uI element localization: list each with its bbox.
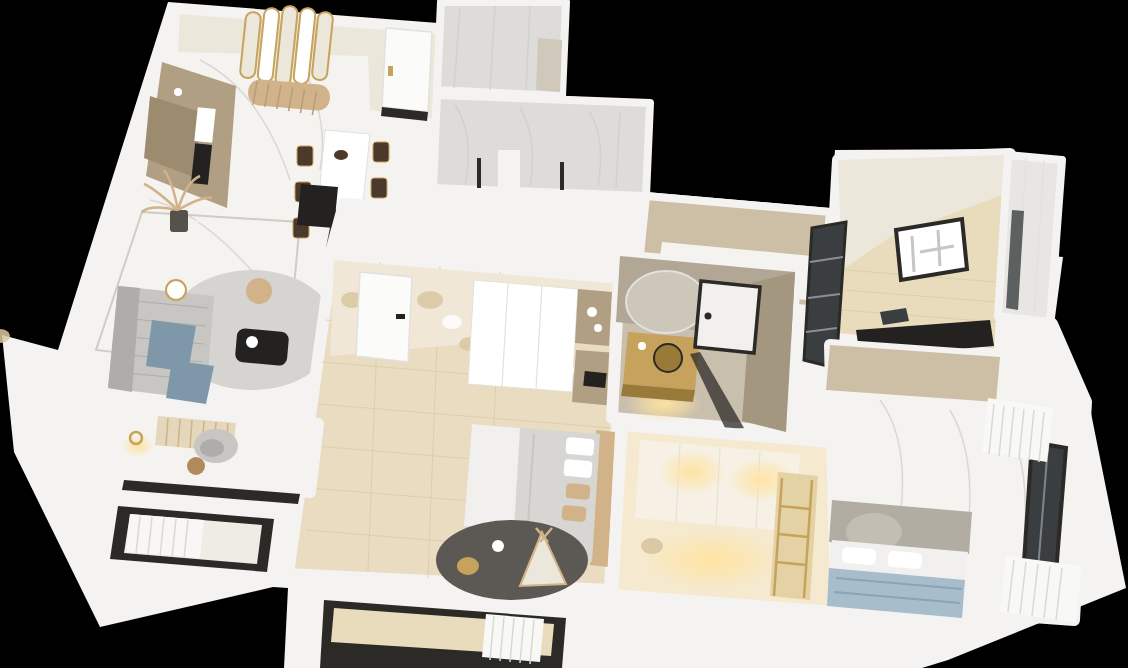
room-foyer xyxy=(112,408,318,504)
wood-side-table xyxy=(187,457,205,475)
nook-vase-2 xyxy=(594,324,602,332)
master-door-handle-icon xyxy=(396,314,405,319)
room-bedroom-right xyxy=(826,320,1086,622)
sconce-glow xyxy=(122,435,154,457)
bath-door-handle-icon xyxy=(705,313,712,320)
room-study xyxy=(804,154,1010,368)
pillow-white-2 xyxy=(563,459,592,478)
room-marble-bath xyxy=(433,95,650,196)
dining-chair-1 xyxy=(297,146,313,166)
vessel-sink xyxy=(654,344,682,372)
armchair-seat xyxy=(200,439,224,457)
loft-bed-ladder xyxy=(770,472,818,600)
pillow-tan-2 xyxy=(561,505,586,522)
vanity-stool xyxy=(554,362,574,378)
pillow-tan-1 xyxy=(565,483,590,500)
shower-door-nook xyxy=(536,38,562,92)
dining-chair-4 xyxy=(373,142,389,162)
table-decor xyxy=(334,150,348,160)
faucet xyxy=(638,342,646,350)
pouf xyxy=(246,278,272,304)
shelf-nook xyxy=(575,289,612,346)
kettle xyxy=(174,88,182,96)
master-rug xyxy=(436,520,588,600)
media-console xyxy=(297,184,338,228)
room-closet xyxy=(998,155,1062,322)
kids-stool xyxy=(641,538,663,554)
kids-floor-glow xyxy=(642,530,782,590)
room-bathroom-gold xyxy=(612,256,795,432)
laptop xyxy=(583,371,606,388)
bath-fixture-2 xyxy=(560,162,564,190)
gold-side-table xyxy=(166,280,186,300)
bath-fixture-1 xyxy=(477,158,481,188)
right-bed xyxy=(827,540,968,618)
shower-screen xyxy=(498,150,520,192)
gold-chair xyxy=(457,557,479,575)
entry-door-handle-icon xyxy=(388,66,393,76)
right-pillow-2 xyxy=(887,551,922,570)
round-mirror xyxy=(626,271,706,333)
right-pillow-1 xyxy=(841,547,876,566)
room-kids xyxy=(612,425,845,612)
arched-mirror-panel xyxy=(240,5,334,115)
appliance-fridge xyxy=(194,107,215,143)
room-shower-top xyxy=(437,2,566,96)
blue-throw-2 xyxy=(166,360,214,404)
nook-vase-1 xyxy=(587,307,597,317)
floorplan-render: 3D axonometric dollhouse rendering of an… xyxy=(0,0,1128,668)
dining-chair-5 xyxy=(371,178,387,198)
duvet-white-edge xyxy=(464,424,520,530)
floor-lamp xyxy=(492,540,504,552)
downlight-glow-1 xyxy=(658,450,726,494)
coffee-table-decor xyxy=(246,336,258,348)
curtain-bundle-top xyxy=(982,398,1054,462)
plant-pot xyxy=(170,210,188,232)
pillow-white-1 xyxy=(565,437,594,456)
curtain-bundle-bottom xyxy=(1000,556,1082,622)
coffee-table xyxy=(235,328,290,366)
